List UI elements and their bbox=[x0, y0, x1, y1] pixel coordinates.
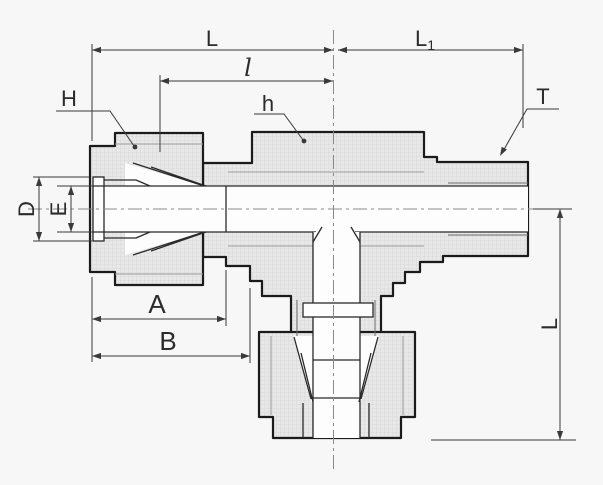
dim-L-run: L bbox=[92, 26, 333, 141]
dim-L1: L1 bbox=[338, 26, 523, 128]
fitting-body bbox=[90, 132, 528, 438]
dim-label-T: T bbox=[536, 84, 549, 109]
dim-label-l: l bbox=[244, 54, 252, 82]
branch-sleeve-flange bbox=[303, 303, 373, 317]
dim-label-E: E bbox=[46, 202, 71, 217]
fitting-diagram: L L1 l H h T bbox=[0, 0, 603, 485]
dim-label-A: A bbox=[148, 289, 166, 319]
dim-label-H: H bbox=[61, 86, 77, 111]
dim-label-D: D bbox=[14, 201, 39, 217]
dim-label-B: B bbox=[159, 326, 176, 356]
dim-label-h: h bbox=[262, 91, 274, 116]
label-T-leader: T bbox=[500, 84, 559, 156]
dim-label-L1: L1 bbox=[415, 26, 435, 53]
dim-label-L-branch: L bbox=[537, 318, 562, 330]
branch-tube bbox=[313, 232, 360, 438]
dim-label-L-run: L bbox=[206, 26, 218, 51]
